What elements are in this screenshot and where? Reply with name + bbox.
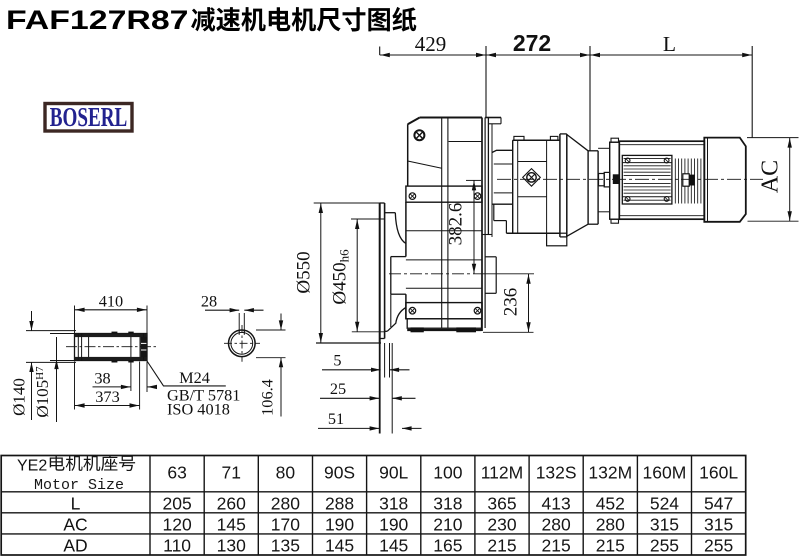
- svg-text:YE2: YE2: [17, 457, 47, 474]
- svg-text:280: 280: [596, 515, 625, 535]
- svg-text:280: 280: [542, 515, 571, 535]
- svg-text:230: 230: [487, 515, 516, 535]
- svg-text:38: 38: [94, 368, 110, 387]
- svg-text:106.4: 106.4: [258, 379, 277, 416]
- svg-text:410: 410: [99, 292, 123, 311]
- svg-text:315: 315: [650, 515, 679, 535]
- svg-text:28: 28: [201, 291, 217, 310]
- svg-text:255: 255: [704, 536, 733, 556]
- svg-text:210: 210: [433, 515, 462, 535]
- svg-text:260: 260: [217, 494, 246, 514]
- svg-text:110: 110: [163, 536, 191, 556]
- svg-text:M24: M24: [179, 368, 210, 387]
- svg-text:L: L: [71, 494, 81, 514]
- svg-text:365: 365: [487, 494, 516, 514]
- svg-text:165: 165: [433, 536, 462, 556]
- svg-text:280: 280: [271, 494, 300, 514]
- svg-text:429: 429: [415, 32, 447, 56]
- svg-text:L: L: [663, 32, 676, 56]
- svg-text:315: 315: [704, 515, 733, 535]
- svg-text:413: 413: [542, 494, 571, 514]
- svg-text:160L: 160L: [699, 462, 738, 482]
- svg-text:AC: AC: [63, 515, 87, 535]
- svg-text:170: 170: [271, 515, 300, 535]
- svg-text:318: 318: [433, 494, 462, 514]
- svg-text:51: 51: [328, 409, 344, 428]
- svg-text:135: 135: [271, 536, 300, 556]
- svg-text:132S: 132S: [536, 462, 577, 482]
- svg-text:80: 80: [276, 462, 296, 482]
- svg-text:71: 71: [222, 462, 241, 482]
- svg-text:5: 5: [333, 351, 341, 370]
- svg-text:Ø550: Ø550: [294, 251, 315, 293]
- svg-text:ISO 4018: ISO 4018: [167, 400, 230, 419]
- svg-text:120: 120: [162, 515, 191, 535]
- svg-text:205: 205: [162, 494, 191, 514]
- svg-text:90L: 90L: [379, 462, 408, 482]
- svg-text:Ø140: Ø140: [10, 378, 29, 416]
- svg-text:AC: AC: [758, 160, 784, 193]
- svg-text:236: 236: [501, 288, 522, 317]
- svg-text:145: 145: [217, 515, 246, 535]
- svg-text:100: 100: [433, 462, 462, 482]
- svg-text:AD: AD: [63, 536, 87, 556]
- svg-text:373: 373: [95, 387, 119, 406]
- svg-text:160M: 160M: [643, 462, 687, 482]
- svg-text:Motor Size: Motor Size: [34, 477, 124, 494]
- svg-text:90S: 90S: [324, 462, 355, 482]
- svg-text:272: 272: [513, 30, 551, 56]
- svg-text:112M: 112M: [481, 462, 523, 482]
- svg-text:145: 145: [379, 536, 408, 556]
- svg-text:190: 190: [379, 515, 408, 535]
- svg-text:190: 190: [325, 515, 354, 535]
- svg-text:452: 452: [596, 494, 625, 514]
- svg-text:63: 63: [167, 462, 186, 482]
- svg-text:215: 215: [542, 536, 571, 556]
- svg-text:547: 547: [704, 494, 733, 514]
- svg-text:BOSERL: BOSERL: [50, 102, 128, 132]
- svg-text:130: 130: [217, 536, 246, 556]
- svg-text:145: 145: [325, 536, 354, 556]
- svg-text:524: 524: [650, 494, 679, 514]
- svg-text:288: 288: [325, 494, 354, 514]
- svg-text:382.6: 382.6: [446, 203, 467, 246]
- svg-text:215: 215: [596, 536, 625, 556]
- svg-text:318: 318: [379, 494, 408, 514]
- svg-text:25: 25: [330, 379, 346, 398]
- svg-text:FAF127R87: FAF127R87: [6, 5, 189, 35]
- svg-text:255: 255: [650, 536, 679, 556]
- svg-text:215: 215: [487, 536, 516, 556]
- svg-text:132M: 132M: [588, 462, 632, 482]
